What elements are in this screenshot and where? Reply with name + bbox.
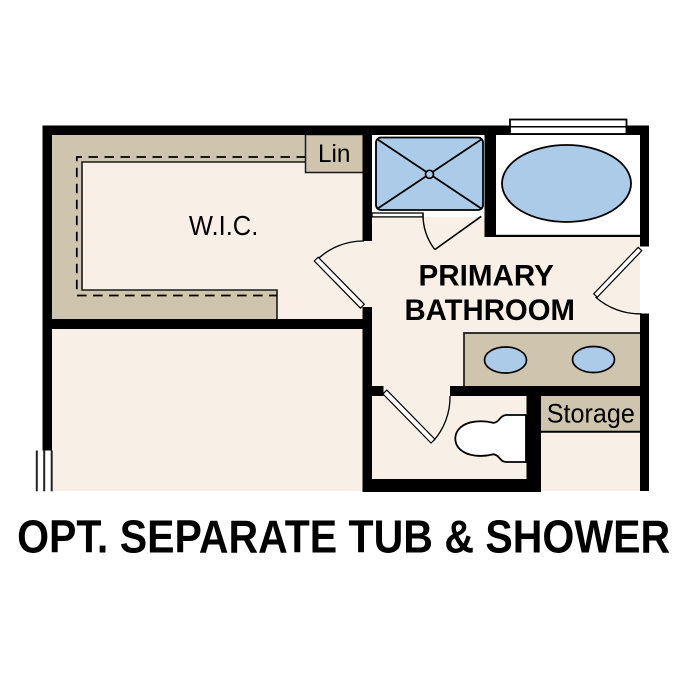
svg-text:BATHROOM: BATHROOM	[404, 294, 575, 327]
svg-text:Lin: Lin	[318, 140, 351, 168]
svg-text:OPT. SEPARATE TUB & SHOWER: OPT. SEPARATE TUB & SHOWER	[17, 510, 670, 562]
svg-text:PRIMARY: PRIMARY	[419, 260, 554, 293]
svg-text:Storage: Storage	[547, 399, 635, 429]
svg-text:W.I.C.: W.I.C.	[189, 210, 259, 241]
